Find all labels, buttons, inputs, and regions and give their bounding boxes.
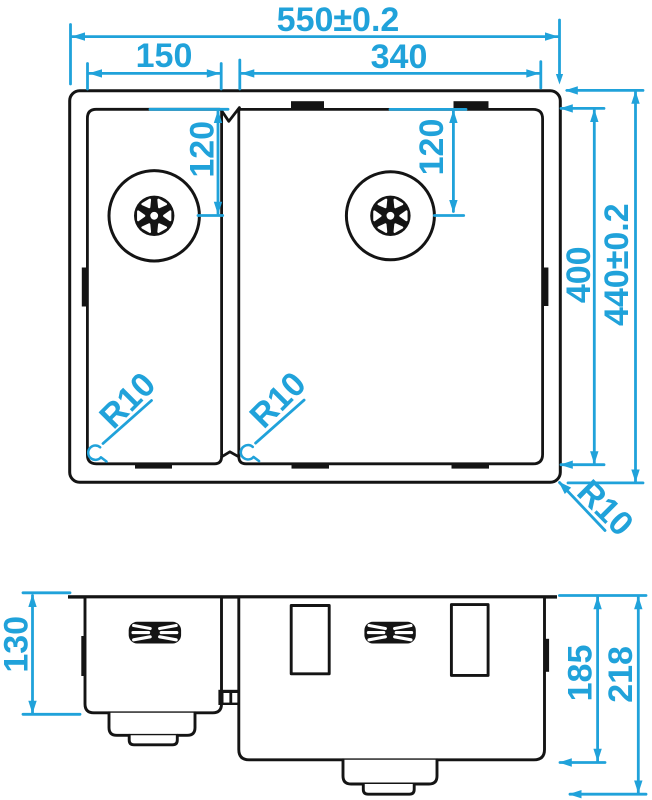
svg-text:218: 218 — [602, 646, 640, 703]
svg-text:550±0.2: 550±0.2 — [277, 1, 400, 39]
svg-text:185: 185 — [562, 645, 600, 702]
svg-text:150: 150 — [136, 37, 193, 75]
svg-text:340: 340 — [371, 38, 428, 76]
svg-text:120: 120 — [184, 121, 222, 178]
svg-text:440±0.2: 440±0.2 — [598, 203, 636, 326]
svg-text:120: 120 — [413, 119, 451, 176]
svg-text:130: 130 — [0, 616, 36, 673]
svg-text:400: 400 — [560, 246, 598, 303]
